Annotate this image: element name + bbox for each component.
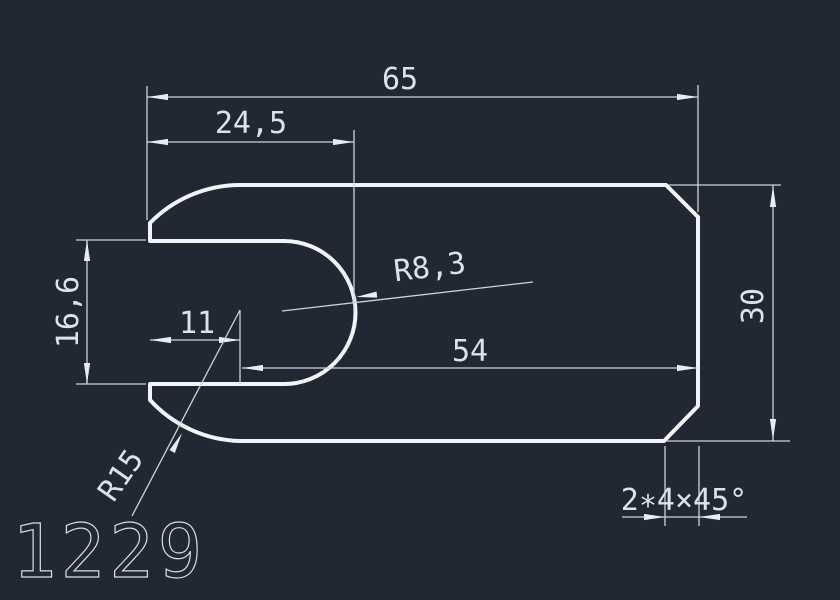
dimension-arc-center-offset[interactable]: 11 [150,306,240,384]
arrowhead-icon [242,365,263,371]
dimension-label: 16,6 [51,276,86,348]
arrowhead-icon [150,337,171,343]
dimension-label: R15 [91,443,151,507]
dimension-chamfer-note[interactable]: 2∗4×45° [621,446,747,526]
arrowhead-icon [84,363,90,384]
dimension-total-height[interactable]: 30 [666,185,790,441]
arrowhead-icon [147,94,168,100]
cad-drawing: 65 24,5 16,6 11 [0,0,840,600]
dimension-label: 65 [382,62,418,97]
dimension-label: 24,5 [215,106,287,141]
dimension-label: 11 [179,306,215,341]
dimension-label: 54 [452,334,488,369]
dimension-label: 30 [736,288,771,324]
dimension-body-length[interactable]: 54 [242,334,698,371]
dimension-label: R8,3 [392,246,468,290]
dimension-total-length[interactable]: 65 [147,62,698,220]
dimension-slot-depth[interactable]: 24,5 [147,106,354,313]
dimension-slot-end-radius[interactable]: R8,3 [282,246,533,311]
dimension-slot-width[interactable]: 16,6 [51,240,146,384]
arrowhead-icon [770,186,776,207]
cad-viewport: 65 24,5 16,6 11 [0,0,840,600]
arrowhead-icon [147,139,168,145]
arrowhead-icon [677,94,698,100]
arrowhead-icon [333,139,354,145]
drawing-number[interactable]: 1229 [12,509,206,595]
arrowhead-icon [770,419,776,440]
arrowhead-icon [84,240,90,261]
arrowhead-icon [169,432,184,453]
arrowhead-icon [356,292,378,301]
arrowhead-icon [219,337,240,343]
dimension-label: 2∗4×45° [621,483,747,518]
part-outline[interactable] [150,185,698,441]
arrowhead-icon [677,365,698,371]
